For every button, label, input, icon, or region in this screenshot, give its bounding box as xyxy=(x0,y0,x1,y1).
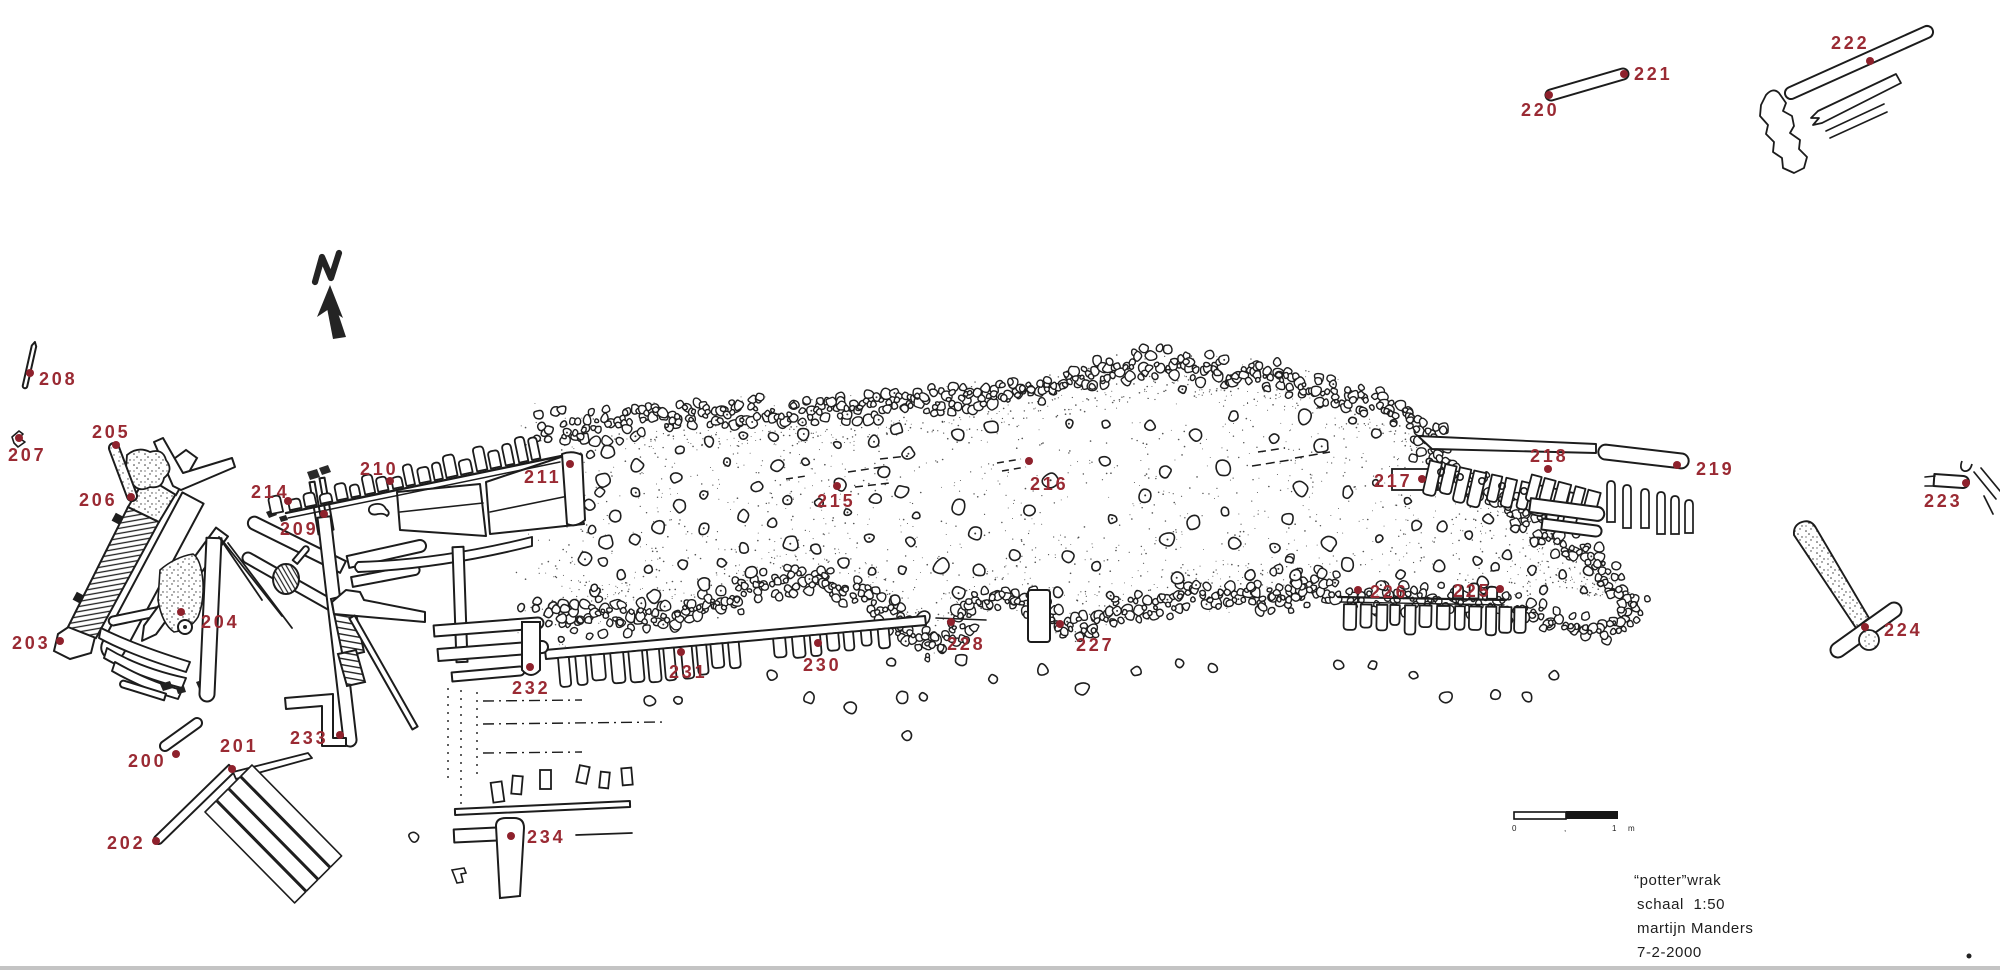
svg-text:223: 223 xyxy=(1924,491,1962,511)
svg-text:222: 222 xyxy=(1831,33,1869,53)
svg-text:214: 214 xyxy=(251,482,289,502)
svg-text:schaal 1:50: schaal 1:50 xyxy=(1637,896,1725,913)
svg-text:204: 204 xyxy=(201,612,239,632)
svg-text:219: 219 xyxy=(1696,459,1734,479)
svg-text:225: 225 xyxy=(1453,581,1491,601)
svg-text:221: 221 xyxy=(1634,64,1672,84)
svg-text:208: 208 xyxy=(39,369,77,389)
svg-text:220: 220 xyxy=(1521,100,1559,120)
svg-text:227: 227 xyxy=(1076,635,1114,655)
svg-text:231: 231 xyxy=(669,662,707,682)
svg-text:207: 207 xyxy=(8,445,46,465)
svg-text:234: 234 xyxy=(527,827,565,847)
svg-text:224: 224 xyxy=(1884,620,1922,640)
svg-text:martijn Manders: martijn Manders xyxy=(1637,920,1754,937)
svg-text:217: 217 xyxy=(1374,471,1412,491)
svg-text:7-2-2000: 7-2-2000 xyxy=(1637,944,1702,961)
svg-text:205: 205 xyxy=(92,422,130,442)
svg-text:215: 215 xyxy=(817,491,855,511)
svg-text:0: 0 xyxy=(1512,824,1517,833)
svg-text:233: 233 xyxy=(290,728,328,748)
svg-text:202: 202 xyxy=(107,833,145,853)
svg-text:228: 228 xyxy=(947,634,985,654)
svg-text:m: m xyxy=(1628,824,1635,833)
svg-text:209: 209 xyxy=(280,519,318,539)
svg-text:200: 200 xyxy=(128,751,166,771)
svg-text:203: 203 xyxy=(12,633,50,653)
svg-text:216: 216 xyxy=(1030,474,1068,494)
svg-text:206: 206 xyxy=(79,490,117,510)
svg-text:226: 226 xyxy=(1370,582,1408,602)
svg-text:211: 211 xyxy=(524,467,561,487)
svg-text:230: 230 xyxy=(803,655,841,675)
svg-text:“potter”wrak: “potter”wrak xyxy=(1634,872,1721,889)
svg-text:232: 232 xyxy=(512,678,550,698)
svg-text:218: 218 xyxy=(1530,446,1568,466)
svg-text:1: 1 xyxy=(1612,824,1617,833)
svg-text:,: , xyxy=(1564,824,1566,833)
svg-text:210: 210 xyxy=(360,459,398,479)
svg-text:201: 201 xyxy=(220,736,258,756)
